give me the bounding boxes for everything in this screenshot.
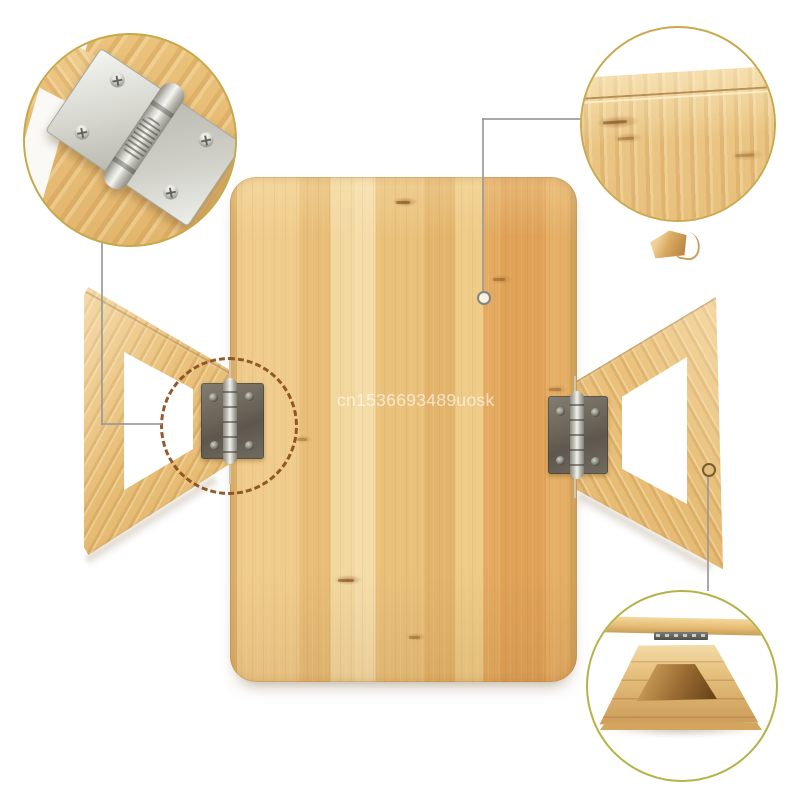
connector-line-corner-detail	[482, 118, 484, 296]
screw-icon	[556, 456, 565, 465]
product-photo-stage: cn1536693489uosk	[0, 0, 800, 800]
connector-dot-leg	[702, 463, 716, 477]
connector-line-hinge-detail	[101, 239, 103, 425]
screw-icon	[556, 407, 565, 416]
screw-icon	[591, 457, 600, 466]
connector-line-assembled-view	[707, 472, 709, 591]
right-leg-cutout	[622, 357, 687, 504]
tabletop-corner-detail	[580, 63, 776, 222]
screw-icon	[591, 408, 600, 417]
corner-zoom-circle	[580, 26, 776, 222]
assembled-hinge	[654, 632, 708, 640]
wedge-curl-line	[674, 230, 702, 261]
wood-knot	[490, 275, 512, 284]
hinge-zoom-circle	[23, 33, 237, 247]
connector-dot-tabletop	[477, 291, 491, 305]
assembled-view-circle	[586, 590, 778, 782]
right-hinge	[548, 396, 608, 474]
hinge-highlight-dotted-circle	[160, 357, 298, 495]
right-leg-edge	[576, 296, 719, 384]
assembled-leg-base-edge	[600, 723, 762, 730]
watermark: cn1536693489uosk	[337, 390, 495, 411]
wood-wedge-piece	[646, 228, 698, 260]
wood-knot	[406, 633, 426, 641]
connector-line-corner-detail	[482, 118, 582, 120]
wood-knot	[334, 575, 362, 585]
connector-line-hinge-detail	[101, 423, 162, 425]
right-hinge-barrel	[570, 391, 584, 479]
wood-knot	[546, 385, 568, 394]
wood-knot	[392, 197, 418, 207]
